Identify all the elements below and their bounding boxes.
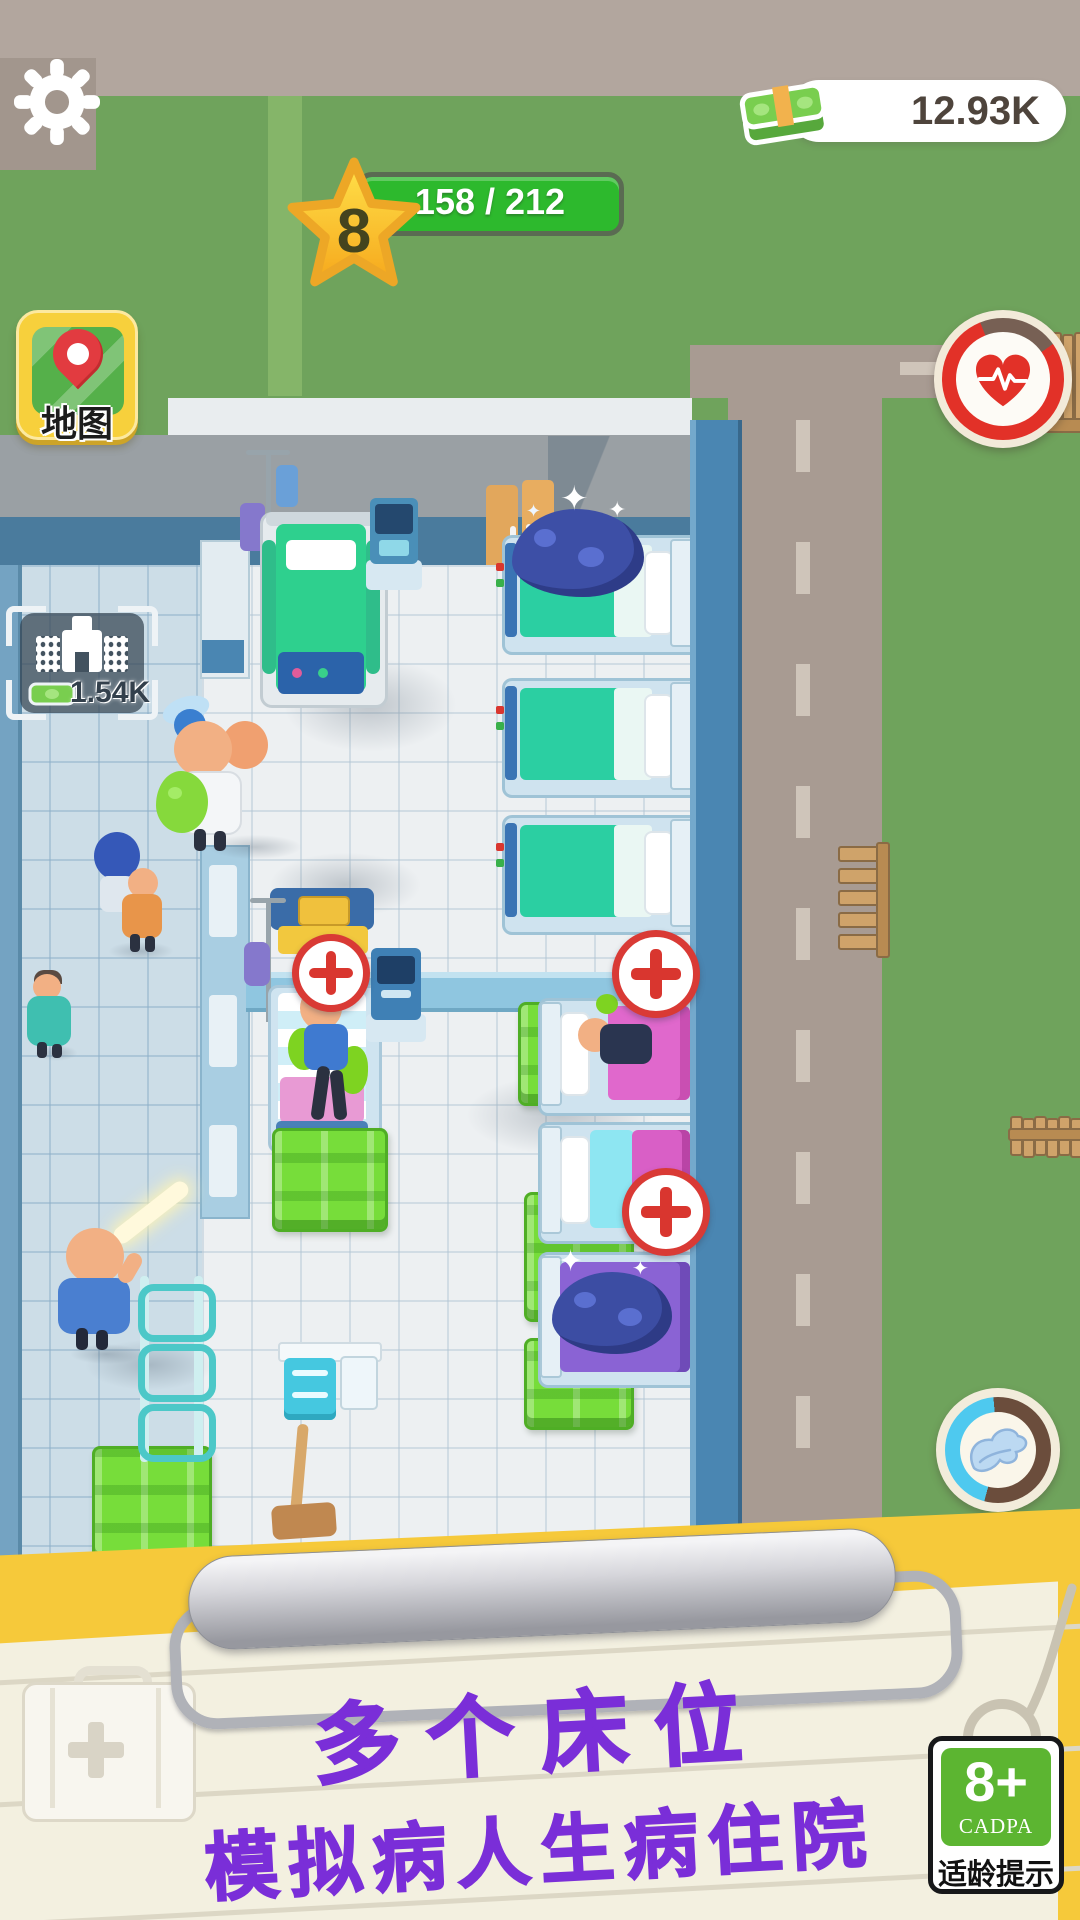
fence-icon [1010, 1116, 1080, 1158]
doctor-carrying-patient [160, 695, 285, 855]
patient-slime: ✦ ✦ [548, 1256, 678, 1360]
sparkle-icon: ✦ [632, 1256, 649, 1281]
money-pile[interactable] [272, 1128, 388, 1232]
vitals-monitor-icon [364, 496, 424, 592]
red-cross-icon[interactable] [612, 930, 700, 1018]
patient-slime: ✦ ✦ ✦ [512, 495, 652, 601]
road-dashes-vertical [796, 420, 810, 1510]
glowstick-icon [110, 1178, 191, 1247]
corridor-left-wall [0, 565, 22, 1600]
sparkle-icon: ✦ [608, 497, 626, 523]
level-star: 8 [286, 156, 422, 292]
fence-icon [838, 846, 890, 966]
map-button-label: 地图 [19, 395, 135, 447]
patient-waving-glowstick [50, 1186, 200, 1352]
sparkle-icon: ✦ [526, 501, 541, 522]
settings-button[interactable] [14, 56, 100, 148]
age-rating-org: CADPA [941, 1814, 1051, 1839]
waiting-patients [82, 830, 177, 958]
speed-progress-button[interactable] [936, 1388, 1060, 1512]
age-rating-age: 8+ [941, 1750, 1051, 1814]
age-rating-label: 适龄提示 [933, 1851, 1059, 1893]
age-rating-tile: 8+ CADPA [941, 1748, 1051, 1846]
building-right-wall [690, 420, 742, 1600]
hospital-icon [36, 624, 128, 672]
age-rating-badge: 8+ CADPA 适龄提示 [928, 1736, 1064, 1894]
sparkle-icon: ✦ [558, 1244, 583, 1279]
ticket-kiosk-icon [366, 948, 426, 1042]
red-cross-icon[interactable] [622, 1168, 710, 1256]
medicine-cabinet-icon [278, 1342, 378, 1434]
heart-ecg-icon [964, 344, 1042, 414]
building-parapet [168, 398, 692, 436]
hospital-bed [502, 678, 694, 792]
health-progress-button[interactable] [934, 310, 1072, 448]
plot-price: 1.54K [70, 676, 150, 710]
plot-purchase-widget[interactable]: 1.54K [6, 606, 158, 720]
sparkle-icon: ✦ [560, 479, 589, 519]
mop-icon [268, 1424, 348, 1544]
money-value: 12.93K [911, 89, 1040, 134]
game-screen: ✦ ✦ ✦ [0, 0, 1080, 1920]
gear-icon [14, 56, 100, 148]
nurse-character [24, 970, 80, 1060]
level-number: 8 [286, 196, 422, 267]
hospital-bed [502, 815, 694, 929]
map-button[interactable]: 地图 [16, 310, 138, 440]
red-cross-icon[interactable] [292, 934, 370, 1012]
wing-icon [964, 1422, 1034, 1478]
cash-icon [732, 68, 836, 156]
wall-pillar [200, 845, 250, 1219]
